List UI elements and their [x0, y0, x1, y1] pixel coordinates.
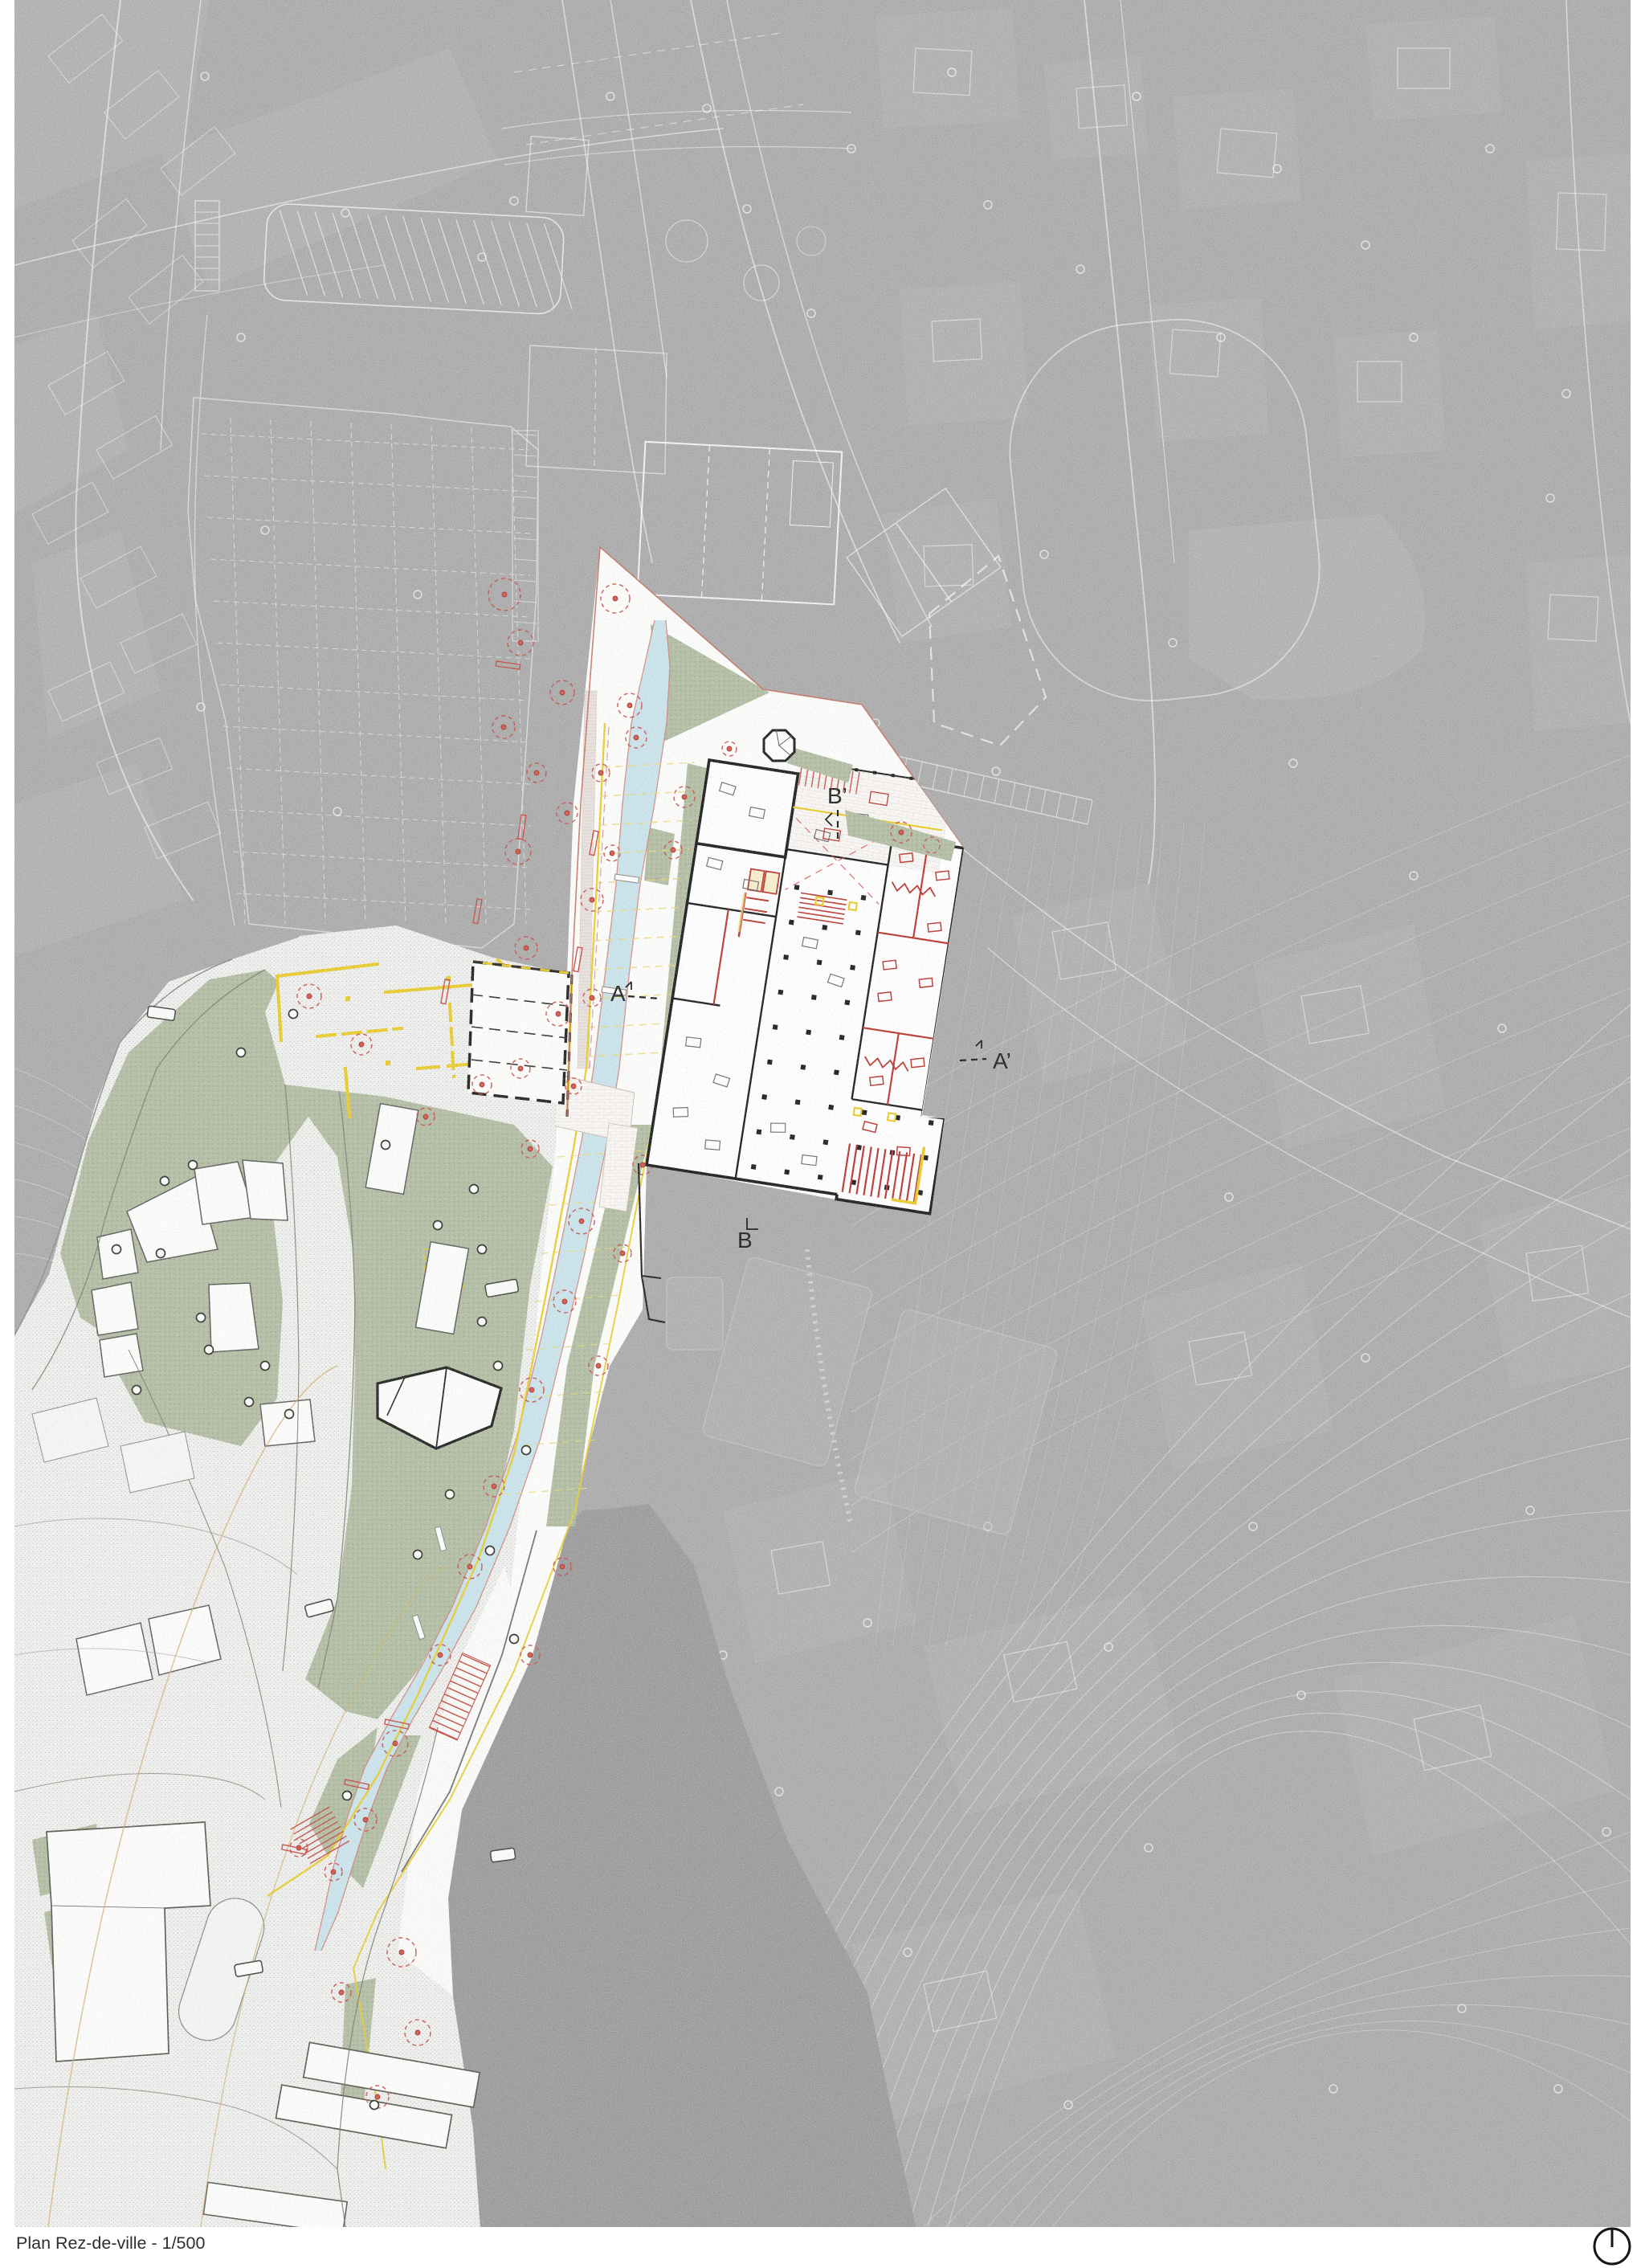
svg-text:Plan Rez-de-ville - 1/500: Plan Rez-de-ville - 1/500 [16, 2233, 205, 2253]
